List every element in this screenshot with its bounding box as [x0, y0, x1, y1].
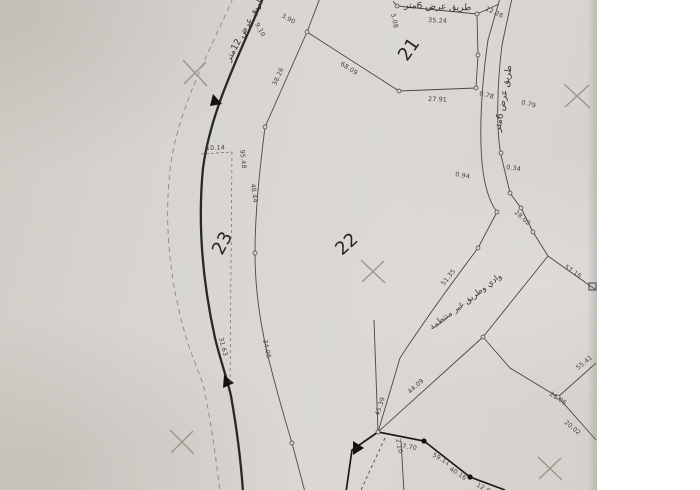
dimension-label: 5.08 [389, 13, 399, 29]
dimension-label: 0.34 [506, 164, 522, 173]
wadi-line-west [346, 432, 378, 490]
dimension-label: 9.10 [253, 22, 266, 38]
measure-chord-dashed [230, 152, 232, 385]
right-road-west-edge [378, 0, 500, 432]
dimension-label: 12.8 [475, 482, 491, 490]
dimension-labels: 35.24 5.08 12.26 3.90 9.10 38.26 68.09 2… [206, 5, 594, 490]
grid-cross-icon [361, 260, 385, 283]
right-road-label: طريق عرض 6متر [493, 64, 515, 133]
wadi-road-label: وادي وطريق غير منتظمة [428, 272, 504, 333]
boundary-line [483, 337, 596, 440]
grid-cross-icon [538, 457, 562, 480]
road-direction-arrows [210, 94, 364, 455]
dimension-label: 20.02 [563, 419, 582, 437]
dimension-label: 26.06 [548, 391, 568, 407]
paper-edge-shadow [587, 0, 597, 490]
dashed-line [361, 438, 385, 490]
parcel-21-bottom-edge [399, 88, 476, 91]
dimension-label: 27.91 [428, 96, 447, 104]
dimension-label: 0.79 [520, 99, 536, 110]
dimension-label: 28.02 [513, 209, 532, 227]
grid-cross-icon [170, 430, 194, 454]
boundary-line [265, 32, 307, 127]
survey-point-filled [467, 474, 472, 479]
dimension-label: 45.39 [374, 396, 387, 416]
dimension-label: 95.48 [238, 149, 247, 169]
dimension-label: 10.14 [206, 144, 225, 152]
parcel-22-west-boundary [255, 127, 305, 490]
boundary-line [307, 32, 399, 91]
dimension-label: 2.10 [394, 438, 403, 454]
dimension-label: 35.24 [428, 17, 447, 25]
dimension-label: 51.35 [440, 268, 457, 287]
wadi-centerline [346, 432, 505, 490]
top-road-label: طريق عرض 6متر [403, 1, 472, 13]
cadastral-map-photo: 21 22 23 طريق عرض 6متر طريق عرض 12متر طر… [0, 0, 700, 490]
boundary-line [483, 256, 548, 337]
right-road-east-edge [498, 0, 596, 290]
parcel-21-east-edge [476, 14, 478, 88]
dimension-label: 57.16 [563, 264, 583, 280]
dimension-label: 38.26 [271, 67, 285, 87]
parcel-22-label: 22 [331, 229, 362, 260]
parcel-21-label: 21 [394, 34, 424, 65]
dimension-label: 48.44 [249, 183, 258, 203]
boundary-line [378, 337, 483, 432]
dimension-label: 34.06 [261, 339, 272, 359]
dimension-label: 0.94 [455, 171, 471, 180]
dimension-label: 3.90 [280, 13, 296, 26]
dimension-label: 44.09 [407, 378, 426, 396]
survey-point-filled [421, 438, 426, 443]
parcel-23-label: 23 [208, 228, 237, 258]
dimension-label: 0.78 [478, 90, 494, 101]
boundary-line [307, 0, 320, 32]
